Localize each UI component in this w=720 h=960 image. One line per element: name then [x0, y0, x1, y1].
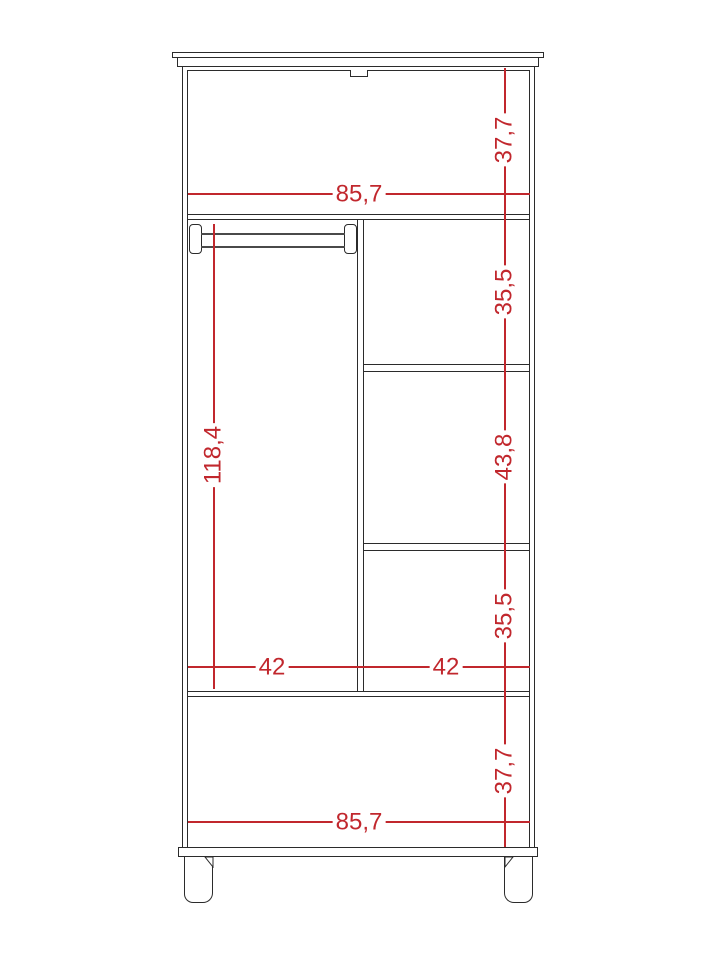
dim-label-bottom-height: 37,7 [490, 745, 517, 798]
dim-label-top-width: 85,7 [333, 180, 386, 207]
base-plinth [178, 847, 538, 857]
hanging-rod-bar-top [201, 233, 345, 235]
dim-label-42-left: 42 [256, 653, 289, 680]
dim-label-right-middle: 43,8 [490, 431, 517, 484]
bottom-divider-shelf [187, 691, 530, 697]
dim-label-right-upper: 35,5 [490, 266, 517, 319]
dim-label-right-lower: 35,5 [490, 590, 517, 643]
hanging-rod-bar-bottom [201, 246, 345, 248]
dim-label-left-height: 118,4 [199, 423, 226, 487]
top-hanger-notch [350, 70, 368, 77]
hanging-rod-bracket-right [344, 224, 357, 254]
dim-label-bottom-width: 85,7 [333, 808, 386, 835]
leg-pin-left [204, 857, 214, 868]
leg-pin-right [504, 857, 514, 868]
dim-label-42-right: 42 [430, 653, 463, 680]
center-divider [357, 220, 364, 692]
dimension-drawing: 37,7 85,7 35,5 43,8 35,5 118,4 42 42 37,… [0, 0, 720, 960]
hanging-rod-bracket-left [189, 224, 202, 254]
dim-line-width-42 [188, 666, 530, 668]
dim-label-top-height: 37,7 [490, 114, 517, 167]
